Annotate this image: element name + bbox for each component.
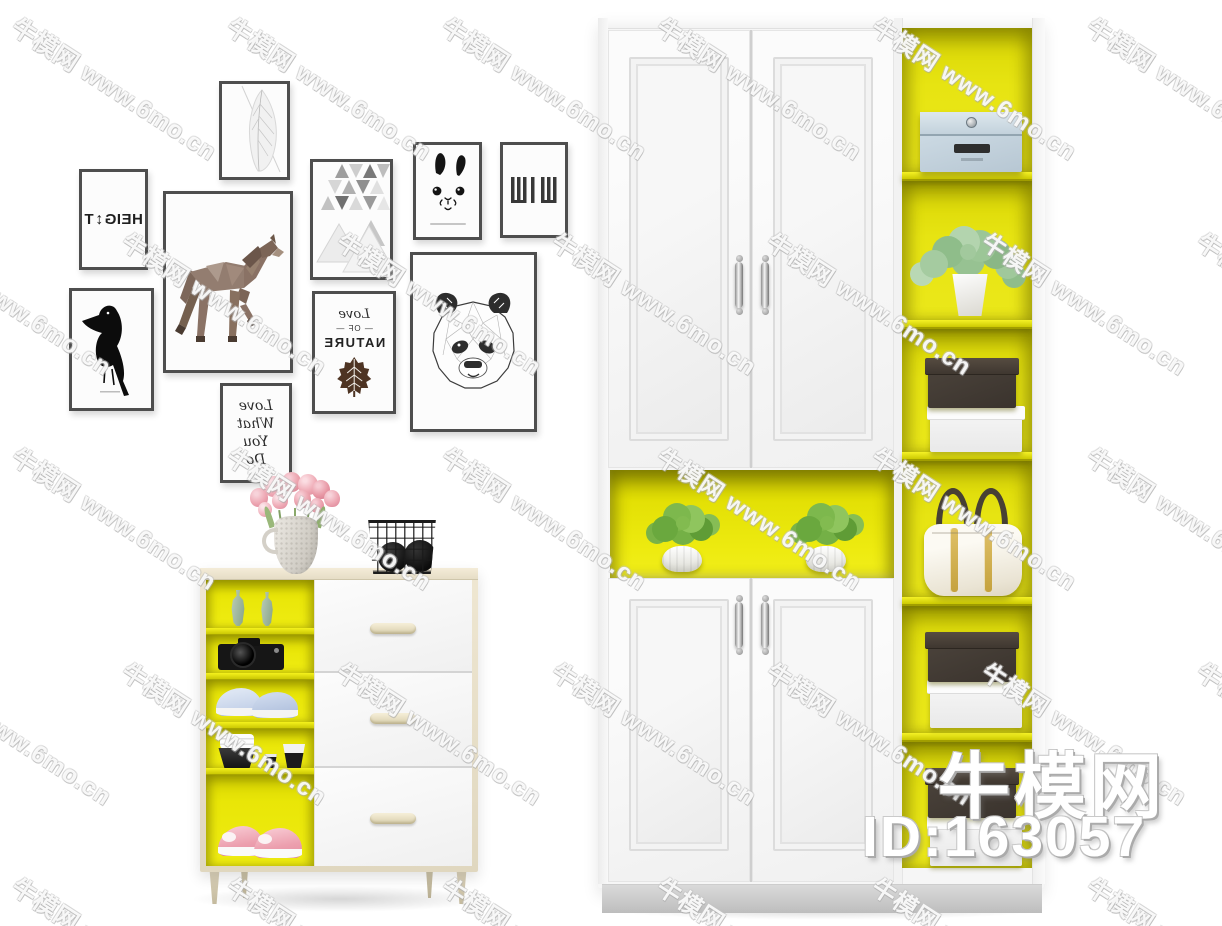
watermark-tile: 牛模网 www.6mo.cn: [0, 653, 120, 812]
watermark-tile: 牛模网 www.6mo.cn: [546, 653, 765, 812]
watermark-tile: 牛模网 www.6mo.cn: [331, 653, 550, 812]
watermark-tile: 牛模网 www.6mo.cn: [546, 223, 765, 382]
watermark-tile: 牛模网 www.6mo.cn: [116, 653, 335, 812]
watermark-tile: 牛模网 www.6mo.cn: [436, 868, 655, 926]
watermark-tile: 牛模网 www.6mo.cn: [436, 8, 655, 167]
watermark-tile: 牛模网 www.6mo.cn: [866, 8, 1085, 167]
watermark-id: ID:163057: [862, 804, 1146, 870]
watermark-tile: 牛模网 www.6mo.cn: [221, 438, 440, 597]
product-render-scene: HEIG↕T: [0, 0, 1222, 926]
watermark-tile: 牛模网 www.6mo.cn: [651, 868, 870, 926]
watermark-tile: 牛模网 www.6mo.cn: [116, 223, 335, 382]
watermark-tile: 牛模网 www.6mo.cn: [1081, 868, 1222, 926]
watermark-tile: 牛模网 www.6mo.cn: [6, 8, 225, 167]
watermark-tile: 牛模网 www.6mo.cn: [436, 438, 655, 597]
watermark-tile: 牛模网 www.6mo.cn: [1191, 653, 1222, 812]
watermark-tile: 牛模网 www.6mo.cn: [866, 438, 1085, 597]
watermark-tile: 牛模网 www.6mo.cn: [0, 223, 120, 382]
watermark-tile: 牛模网 www.6mo.cn: [1191, 223, 1222, 382]
watermark-tile: 牛模网 www.6mo.cn: [221, 868, 440, 926]
watermark-tile: 牛模网 www.6mo.cn: [651, 8, 870, 167]
watermark-tile: 牛模网 www.6mo.cn: [6, 438, 225, 597]
watermark-tile: 牛模网 www.6mo.cn: [651, 438, 870, 597]
watermark-tile: 牛模网 www.6mo.cn: [866, 868, 1085, 926]
watermark-tile: 牛模网 www.6mo.cn: [1081, 8, 1222, 167]
watermark-tile: 牛模网 www.6mo.cn: [331, 223, 550, 382]
watermark-tile: 牛模网 www.6mo.cn: [221, 8, 440, 167]
watermark-tile: 牛模网 www.6mo.cn: [1081, 438, 1222, 597]
watermark-tile: 牛模网 www.6mo.cn: [976, 223, 1195, 382]
watermark-tile: 牛模网 www.6mo.cn: [761, 223, 980, 382]
watermark-tile: 牛模网 www.6mo.cn: [6, 868, 225, 926]
